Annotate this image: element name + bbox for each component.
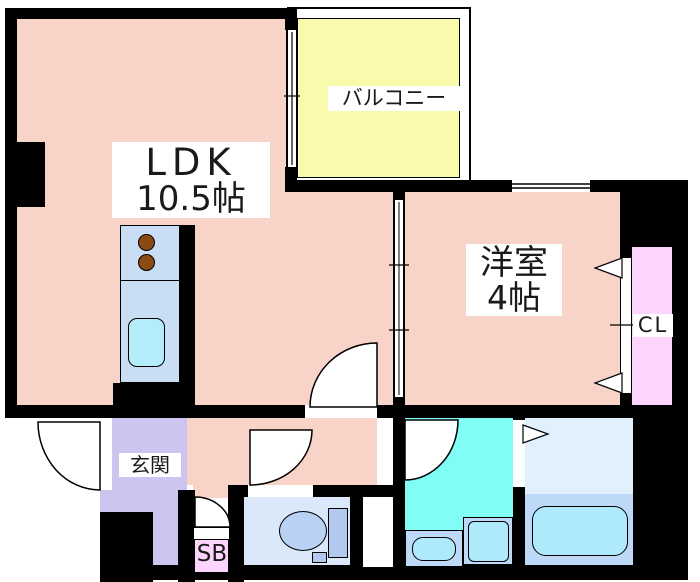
wall-left-pillar	[17, 142, 45, 207]
entrance-label: 玄関	[119, 453, 181, 477]
washer-icon	[468, 521, 509, 562]
wall-divider-top	[393, 192, 405, 200]
balcony-label: バルコニー	[328, 86, 460, 111]
wall-kitchen-side	[180, 225, 195, 383]
stove-burner-icon	[138, 254, 155, 271]
wall-closet-top-sliver	[620, 247, 632, 258]
wall-bottom	[100, 565, 688, 580]
toilet-flush-icon	[312, 552, 327, 563]
washroom-door-recess	[377, 418, 393, 485]
bathtub-icon	[532, 506, 628, 556]
wall-washroom-left	[393, 418, 405, 567]
wall-balcony-upper	[285, 8, 297, 30]
partition-door-strip	[393, 200, 405, 397]
western-room-label: 洋室 4帖	[466, 244, 562, 316]
shoebox-label: SB	[196, 543, 228, 566]
toilet-bowl-icon	[279, 511, 327, 551]
window-western	[512, 180, 590, 192]
hallway-extension	[193, 485, 233, 498]
toilet-tank-icon	[328, 508, 348, 558]
wall-kitchen-bottom	[113, 383, 195, 418]
ldk-size: 10.5帖	[112, 182, 270, 217]
door-opening-entrance	[100, 418, 112, 490]
western-room-name: 洋室	[466, 246, 562, 281]
room-entrance-narrow	[153, 512, 178, 565]
front-door-arc	[38, 422, 100, 490]
wall-corner-ne	[620, 192, 688, 247]
sb-door-arc	[195, 497, 230, 527]
wall-divider-bottom	[393, 397, 405, 418]
western-room-size: 4帖	[466, 281, 562, 315]
sb-cabinet-top	[193, 527, 230, 540]
ldk-name: LDK	[112, 144, 270, 182]
room-bathroom-top	[525, 418, 633, 494]
wall-toilet-right	[350, 497, 363, 567]
floor-plan: LDK 10.5帖 洋室 4帖 バルコニー 玄関 CL SB	[0, 0, 700, 582]
wall-right-bottom-block	[633, 418, 688, 578]
hallway	[187, 418, 377, 485]
kitchen-sink-icon	[128, 318, 165, 367]
ldk-label: LDK 10.5帖	[112, 142, 270, 218]
wall-under-recess	[377, 485, 393, 497]
stove-burner-icon	[138, 234, 155, 251]
door-opening-toilet	[248, 485, 313, 497]
utility-niche	[363, 497, 393, 567]
wall-left	[5, 8, 17, 418]
door-opening-ldk	[305, 405, 377, 418]
door-opening-bathroom	[513, 420, 525, 487]
closet-label: CL	[633, 314, 673, 337]
closet-door-strip	[620, 258, 632, 393]
window-balcony	[286, 30, 298, 167]
wall-top	[7, 8, 295, 19]
vanity-basin-icon	[412, 537, 456, 561]
room-entrance-lower	[100, 490, 178, 512]
kitchen-counter-divider	[120, 280, 180, 281]
wall-topright-a	[285, 180, 512, 192]
